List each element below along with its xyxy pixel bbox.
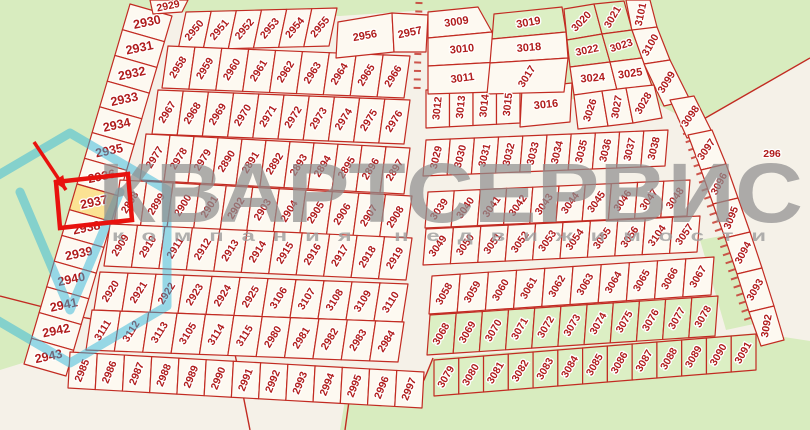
plot-label-3024: 3024 (580, 71, 606, 85)
plot-label-3012: 3012 (430, 96, 444, 121)
plot-label-3015: 3015 (501, 92, 515, 117)
watermark-layer: КВАРТСЕРВИС компания недвижимости (98, 146, 803, 245)
plot-label-3010: 3010 (449, 42, 475, 56)
cadastral-map-viewport[interactable]: 2930293129322933293429352936293729382939… (0, 0, 810, 430)
plot-label-3016: 3016 (533, 98, 559, 112)
watermark-brand: КВАРТСЕРВИС (98, 146, 803, 240)
watermark-tagline: компания недвижимости (112, 228, 784, 245)
cadastral-map[interactable]: 2930293129322933293429352936293729382939… (0, 0, 810, 430)
plot-label-3013: 3013 (454, 95, 468, 120)
plot-label-3018: 3018 (516, 41, 541, 55)
plot-label-3014: 3014 (477, 93, 491, 118)
